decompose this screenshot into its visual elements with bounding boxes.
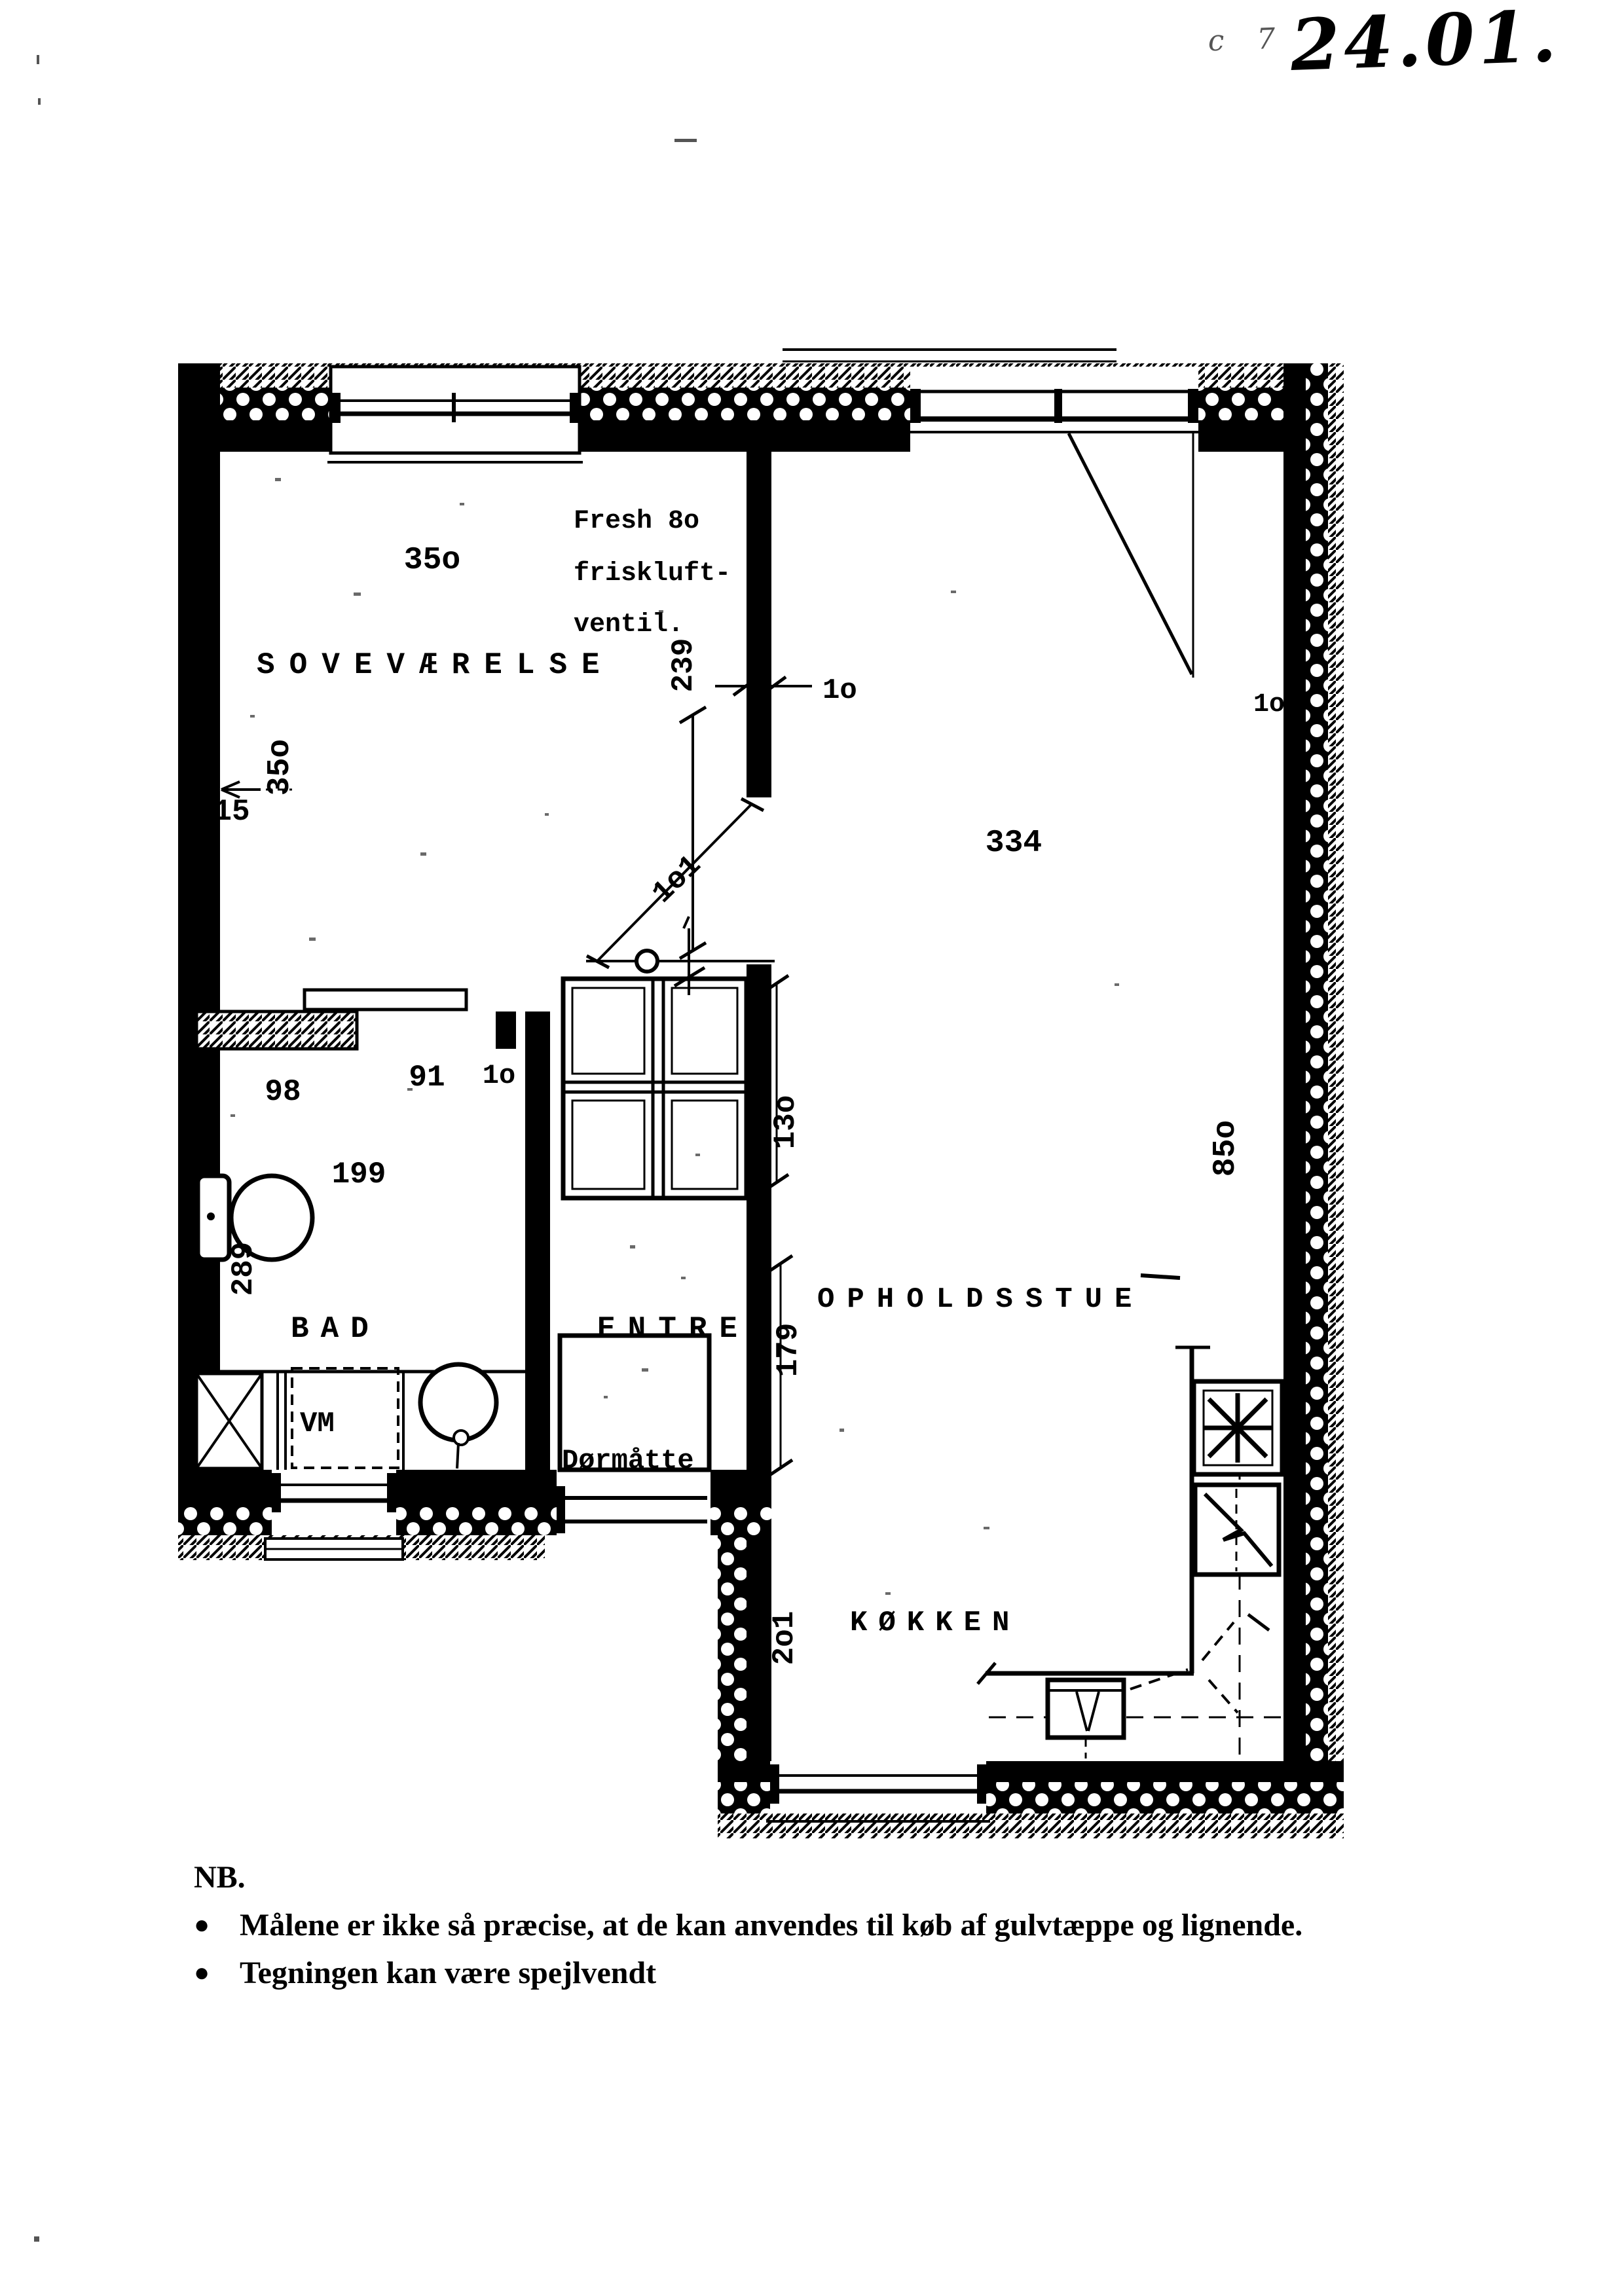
wall-bath-top bbox=[196, 990, 516, 1049]
washing-machine-label: VM bbox=[300, 1408, 335, 1440]
closet bbox=[563, 979, 747, 1198]
door-mat-label: Dørmåtte bbox=[562, 1445, 694, 1476]
entrance-door-icon bbox=[557, 1470, 710, 1535]
bath-window-icon bbox=[265, 1470, 403, 1559]
dim-334: 334 bbox=[986, 826, 1042, 861]
wall-bedroom-living bbox=[747, 452, 771, 797]
bath-door-leaf bbox=[304, 990, 466, 1010]
basin-icon bbox=[420, 1364, 496, 1468]
dim-bedroom-width-top: 35o bbox=[404, 543, 460, 578]
bedroom-window-icon bbox=[327, 367, 583, 462]
vent-note-line2: friskluft- bbox=[574, 559, 731, 589]
dim-850: 85o bbox=[1208, 1120, 1244, 1176]
vent-note-line1: Fresh 8o bbox=[574, 507, 699, 536]
kitchen-window-icon bbox=[766, 1761, 990, 1821]
living-dash-mark bbox=[1141, 1275, 1180, 1278]
hotplate-icon bbox=[1194, 1381, 1282, 1474]
balcony-door-swing bbox=[1069, 433, 1192, 674]
room-label-living: OPHOLDSSTUE bbox=[817, 1283, 1144, 1316]
bullet-icon: ● bbox=[194, 1907, 240, 1943]
wall-left bbox=[178, 363, 220, 1535]
nb-bullet-text: Målene er ikke så præcise, at de kan anv… bbox=[240, 1907, 1302, 1943]
wall-stub bbox=[496, 1011, 516, 1049]
sink-icon bbox=[1195, 1485, 1279, 1575]
room-label-hall: ENTRE bbox=[597, 1312, 750, 1346]
room-label-bedroom: SOVEVÆRELSE bbox=[257, 648, 614, 682]
stove-icon bbox=[1048, 1680, 1124, 1758]
shower-icon bbox=[196, 1374, 262, 1468]
dim-98: 98 bbox=[265, 1075, 301, 1109]
nb-note: NB. ● Målene er ikke så præcise, at de k… bbox=[194, 1859, 1438, 1991]
divider-lines bbox=[278, 1372, 403, 1470]
dim-201: 2o1 bbox=[767, 1611, 802, 1666]
room-label-kitchen: KØKKEN bbox=[850, 1607, 1020, 1639]
dim-10-right: 1o bbox=[1253, 690, 1285, 720]
dim-10-stub: 1o bbox=[483, 1060, 515, 1091]
dim-line-239 bbox=[680, 707, 706, 958]
dim-239: 239 bbox=[667, 638, 701, 693]
dim-179: 179 bbox=[771, 1323, 805, 1377]
dim-bedroom-depth-side: 35o bbox=[263, 739, 298, 795]
room-label-bath: BAD bbox=[291, 1312, 380, 1346]
wall-hall-dining bbox=[747, 964, 771, 1470]
dim-289: 289 bbox=[227, 1242, 261, 1296]
wall-right bbox=[1283, 363, 1344, 1838]
dim-91: 91 bbox=[409, 1061, 445, 1095]
wall-bath-hall bbox=[525, 1011, 550, 1470]
nb-bullet-text: Tegningen kan være spejlvendt bbox=[240, 1955, 656, 1991]
vent-note-line3: ventil. bbox=[574, 610, 684, 640]
scanned-floorplan-page: c 7 24.01. bbox=[0, 0, 1624, 2296]
dim-130: 13o bbox=[769, 1095, 803, 1150]
nb-bullet-row: ● Målene er ikke så præcise, at de kan a… bbox=[194, 1907, 1438, 1943]
dim-199: 199 bbox=[332, 1157, 386, 1192]
dim-wall-15: 15 bbox=[213, 795, 249, 829]
dim-10-mid: 1o bbox=[822, 674, 857, 707]
nb-bullet-row: ● Tegningen kan være spejlvendt bbox=[194, 1955, 1438, 1991]
nb-heading: NB. bbox=[194, 1859, 1438, 1895]
bullet-icon: ● bbox=[194, 1955, 240, 1991]
